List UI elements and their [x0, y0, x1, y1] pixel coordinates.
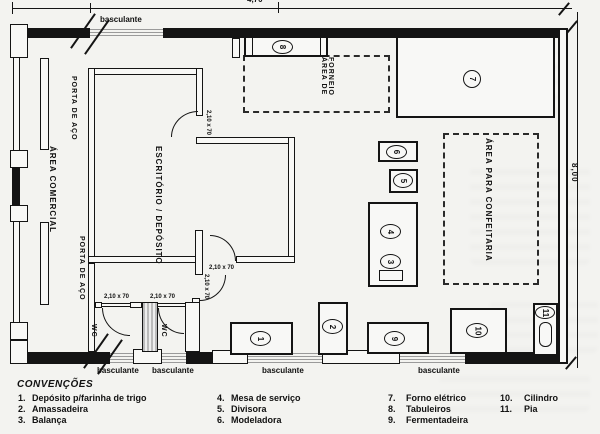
wall-post — [195, 230, 203, 275]
legend-entry-num: 4. — [217, 393, 225, 403]
area-comercial-label: ÁREA COMERCIAL — [48, 146, 57, 233]
equipment-number-1: 1 — [250, 331, 271, 346]
legend-entry-label: Forno elétrico — [406, 393, 466, 403]
dimension-tick — [558, 2, 570, 16]
legend-entry-label: Pia — [524, 404, 538, 414]
dimension-tick — [12, 2, 13, 14]
equipment-3-base — [379, 270, 403, 281]
outer-wall-left — [12, 168, 20, 205]
wall-corner-block — [10, 24, 28, 58]
area-forneio-label-line2: FORNEIO — [327, 57, 334, 96]
basculante-label-top: basculante — [100, 15, 142, 24]
legend-entry-num: 3. — [18, 415, 26, 425]
equipment-number-text: 3 — [386, 259, 394, 263]
door-swing-arc — [210, 235, 236, 261]
legend-entry-label: Mesa de serviço — [231, 393, 301, 403]
area-forneio-boundary — [243, 55, 390, 113]
basculante-label: basculante — [152, 366, 194, 375]
legend-entry-label: Divisora — [231, 404, 267, 414]
room-wall — [236, 256, 295, 263]
basculante-label: basculante — [418, 366, 460, 375]
equipment-8-inner-line — [320, 38, 321, 55]
steel-door-leaf — [40, 222, 49, 305]
basculante-window — [162, 353, 186, 363]
equipment-number-text: 9 — [390, 336, 398, 340]
equipment-number-6: 6 — [386, 145, 407, 159]
wc-door-opening — [158, 303, 185, 307]
wc-door-opening — [102, 303, 130, 307]
door-size-label: 2,10 x 70 — [104, 294, 129, 300]
door-size-label: 2,10 x 70 — [203, 274, 209, 299]
wc-wall — [95, 302, 102, 308]
legend-entry-num: 5. — [217, 404, 225, 414]
legend-entry-num: 7. — [388, 393, 396, 403]
outer-wall-right — [558, 28, 568, 364]
room-wall — [88, 256, 198, 263]
legend-entry-num: 11. — [500, 404, 512, 414]
legend-entry-label: Cilindro — [524, 393, 558, 403]
basculante-label: basculante — [262, 366, 304, 375]
porta-de-aco-label: PORTA DE AÇO — [78, 236, 85, 301]
equipment-number-text: 11 — [541, 308, 549, 316]
legend-entry-num: 1. — [18, 393, 26, 403]
area-forneio-label-line1: ÁREA DE — [320, 57, 327, 96]
equipment-number-5: 5 — [393, 173, 413, 188]
wall-pier — [10, 205, 28, 222]
room-wall — [196, 68, 203, 116]
equipment-number-text: 8 — [278, 45, 286, 49]
equipment-number-text: 6 — [392, 150, 400, 154]
steel-door-opening — [13, 222, 20, 322]
floor-plan-scan: 4,70 8,00 — [0, 0, 600, 434]
legend-entry-label: Depósito p/farinha de trigo — [32, 393, 147, 403]
top-dimension-label: 4,70 — [247, 0, 263, 4]
equipment-number-text: 10 — [473, 326, 481, 335]
equipment-number-3: 3 — [380, 254, 401, 269]
top-dimension-line — [12, 8, 572, 9]
right-dimension-line — [577, 12, 578, 368]
outer-wall-bottom — [186, 352, 212, 364]
room-wall — [88, 263, 95, 352]
wall-stub — [232, 38, 240, 58]
legend-entry-label: Amassadeira — [32, 404, 88, 414]
area-forneio-label: ÁREA DE FORNEIO — [320, 57, 334, 96]
basculante-label: basculante — [97, 366, 139, 375]
equipment-number-text: 7 — [468, 77, 476, 81]
wc-wall — [185, 302, 200, 352]
wall-corner-block — [10, 340, 28, 364]
area-confeitaria-label: ÁREA PARA CONFEITARIA — [484, 138, 493, 262]
equipment-number-11: 11 — [535, 306, 555, 319]
wc-label: WC — [90, 324, 97, 338]
equipment-number-9: 9 — [384, 331, 405, 346]
equipment-number-text: 5 — [399, 178, 407, 182]
basculante-window — [400, 353, 465, 363]
room-wall — [196, 137, 295, 144]
room-wall — [88, 68, 203, 75]
steel-door-opening — [13, 58, 20, 150]
porta-de-aco-label: PORTA DE AÇO — [70, 76, 77, 141]
dimension-tick — [90, 3, 91, 13]
door-swing-arc — [102, 308, 130, 336]
wc-divider-wall — [142, 302, 158, 352]
equipment-number-text: 4 — [386, 229, 394, 233]
legend-entry-label: Tabuleiros — [406, 404, 451, 414]
room-wall — [288, 137, 295, 263]
equipment-8-inner-line — [252, 38, 253, 55]
equipment-number-4: 4 — [380, 224, 401, 239]
escritorio-deposito-label: ESCRITÓRIO / DEPÓSITO — [154, 146, 163, 265]
equipment-number-2: 2 — [322, 319, 343, 334]
equipment-number-10: 10 — [466, 323, 488, 338]
door-size-label: 2,10 x 70 — [205, 110, 211, 135]
legend-entry-label: Fermentadeira — [406, 415, 468, 425]
legend-entry-num: 2. — [18, 404, 26, 414]
equipment-number-text: 1 — [256, 336, 264, 340]
wc-wall — [130, 302, 142, 308]
equipment-number-text: 2 — [328, 324, 336, 328]
legend-title: CONVENÇÕES — [17, 379, 93, 390]
basculante-window — [110, 353, 133, 363]
wall-pier — [10, 322, 28, 340]
legend-entry-num: 6. — [217, 415, 225, 425]
legend-entry-num: 8. — [388, 404, 396, 414]
room-wall — [88, 68, 95, 263]
scan-bleed-smudge — [440, 372, 590, 412]
wall-pier — [10, 150, 28, 168]
door-size-label: 2,10 x 70 — [209, 265, 234, 271]
legend-entry-num: 9. — [388, 415, 396, 425]
dimension-tick — [278, 2, 279, 13]
legend-entry-label: Balança — [32, 415, 67, 425]
wc-label: WC — [160, 324, 167, 338]
equipment-number-7: 7 — [463, 70, 481, 88]
door-size-label: 2,10 x 70 — [150, 294, 175, 300]
equipment-number-8: 8 — [272, 40, 293, 54]
legend-entry-label: Modeladora — [231, 415, 282, 425]
legend-entry-num: 10. — [500, 393, 513, 403]
steel-door-leaf — [40, 58, 49, 150]
door-swing-arc — [171, 111, 198, 137]
sink-basin — [539, 322, 552, 347]
right-dimension-label: 8,00 — [570, 163, 579, 183]
